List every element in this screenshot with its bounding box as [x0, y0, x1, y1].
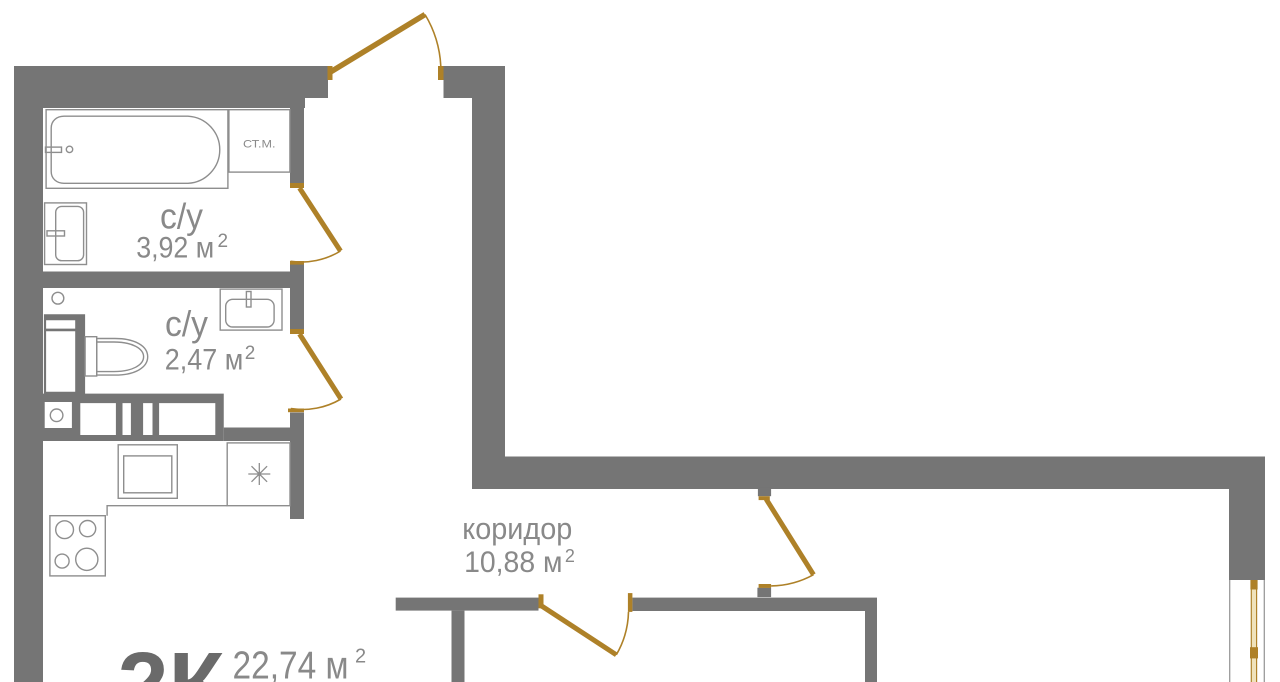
svg-text:2: 2: [245, 343, 256, 364]
svg-text:2,47 м: 2,47 м: [165, 344, 244, 377]
svg-text:2: 2: [218, 231, 229, 252]
svg-text:с/у: с/у: [165, 303, 208, 344]
svg-text:коридор: коридор: [462, 512, 572, 546]
svg-text:2: 2: [355, 646, 366, 668]
svg-text:10,88 м: 10,88 м: [464, 546, 562, 579]
svg-text:3,92 м: 3,92 м: [136, 232, 214, 265]
svg-text:2: 2: [565, 546, 575, 566]
svg-text:с/у: с/у: [160, 196, 203, 237]
svg-text:СТ.М.: СТ.М.: [243, 139, 276, 151]
svg-text:22,74 м: 22,74 м: [233, 645, 349, 682]
svg-text:2К: 2К: [118, 635, 226, 682]
